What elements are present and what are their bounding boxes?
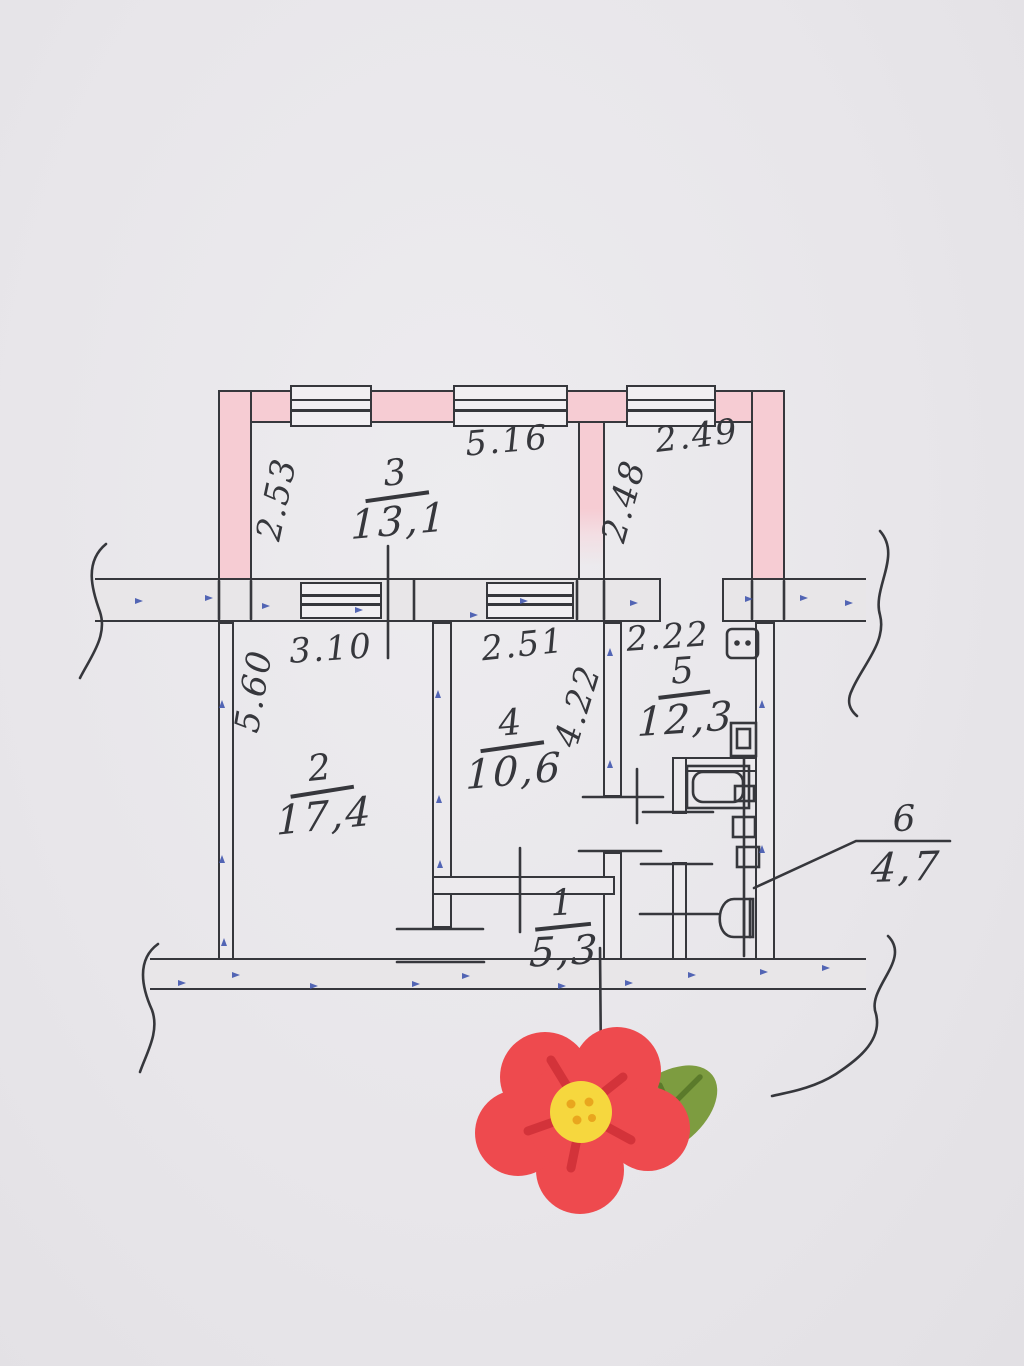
- room-number: 6: [869, 801, 940, 839]
- wall-left-exterior: [218, 390, 252, 580]
- bathtub-icon: [687, 766, 749, 808]
- wall-opening-symbol-2: [486, 582, 574, 619]
- wall-right-exterior: [751, 390, 785, 580]
- dim-room3-left: 2.53: [249, 454, 306, 544]
- toilet-icon: [720, 899, 753, 937]
- room-area: 4,7: [870, 845, 943, 890]
- room-label-6: 6 4,7: [869, 801, 942, 890]
- wall-room4-room5-upper: [603, 622, 622, 797]
- room-area: 12,3: [636, 695, 734, 744]
- room-number: 1: [526, 884, 597, 924]
- room-area: 5,3: [528, 928, 600, 974]
- room-number: 4: [460, 702, 560, 746]
- leaf-icon: [596, 1047, 735, 1178]
- flower-sticker: [475, 1027, 734, 1214]
- wall-bath-left-upper: [672, 757, 687, 814]
- wall-bottom-exterior: [150, 958, 866, 990]
- window-symbol-1: [290, 385, 372, 427]
- dim-room2-top: 3.10: [288, 626, 374, 672]
- room-area: 13,1: [350, 496, 447, 547]
- room-label-1: 1 5,3: [526, 884, 600, 974]
- plan-linework: [0, 0, 1024, 1366]
- room-label-3: 3 13,1: [345, 452, 449, 547]
- room-label-4: 4 10,6: [460, 702, 564, 797]
- wall-middle-right: [722, 578, 866, 622]
- floor-plan: 5.16 2.49 2.53 2.48 3.10 2.51 2.22 5.60 …: [0, 0, 1024, 1366]
- dim-room4-top: 2.51: [479, 621, 566, 670]
- flower-icon: [475, 1027, 690, 1214]
- room-label-5: 5 12,3: [633, 650, 736, 743]
- dim-room2-left: 5.60: [227, 646, 281, 735]
- socket-icon: [727, 629, 758, 658]
- room-area: 10,6: [465, 746, 562, 797]
- room-number: 2: [269, 746, 369, 792]
- dim-room3-top: 5.16: [464, 417, 551, 464]
- wall-room4-room5-lower: [603, 852, 622, 960]
- room-area: 17,4: [276, 790, 373, 842]
- dim-upper-right-top: 2.49: [653, 411, 741, 461]
- room-number: 5: [633, 650, 732, 693]
- wall-right-lower: [755, 622, 775, 960]
- wall-room2-left: [218, 622, 234, 962]
- wall-partition-room3: [578, 421, 605, 580]
- room-label-2: 2 17,4: [269, 746, 375, 842]
- room-number: 3: [345, 452, 445, 496]
- break-mark-right-middle: [849, 531, 888, 716]
- wall-opening-symbol-1: [300, 582, 382, 619]
- wall-bath-left-lower: [672, 862, 687, 960]
